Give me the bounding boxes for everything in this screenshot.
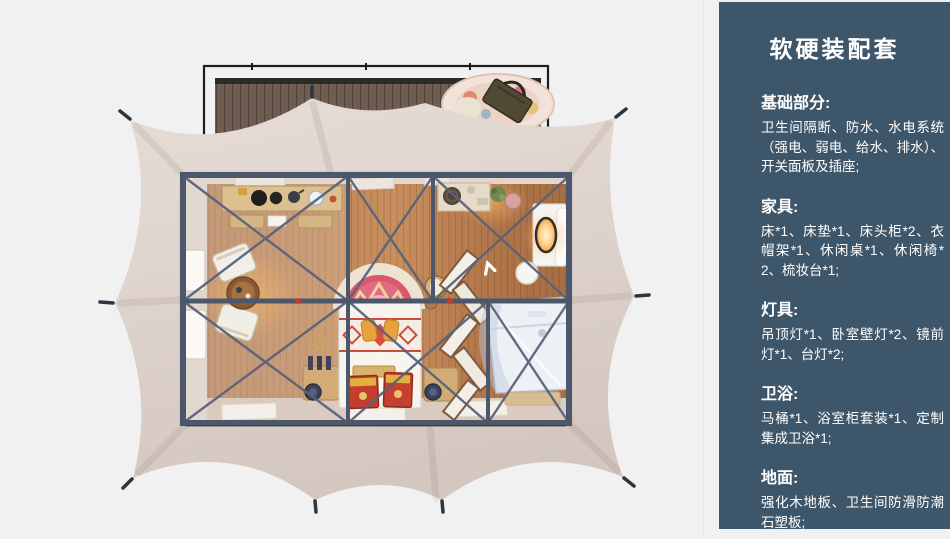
room: [180, 172, 572, 426]
section-bath-heading: 卫浴:: [761, 385, 944, 405]
section-basics: 基础部分: 卫生间隔断、防水、水电系统（强电、弱电、给水、排水）、开关面板及插座…: [761, 94, 944, 177]
frame-joint: [447, 298, 453, 304]
section-basics-body: 卫生间隔断、防水、水电系统（强电、弱电、给水、排水）、开关面板及插座;: [761, 118, 944, 177]
tent-floorplan-scene: [0, 0, 712, 534]
spec-panel: 软硬装配套 基础部分: 卫生间隔断、防水、水电系统（强电、弱电、给水、排水）、开…: [719, 2, 950, 529]
section-furniture-heading: 家具:: [761, 198, 944, 218]
pink-stool: [505, 193, 521, 209]
dressing-desk: [222, 186, 342, 228]
section-lighting: 灯具: 吊顶灯*1、卧室壁灯*2、镜前灯*1、台灯*2;: [761, 301, 944, 364]
scene-panel-divider: [703, 0, 704, 534]
frame-joint: [295, 298, 301, 304]
section-furniture-body: 床*1、床垫*1、床头柜*2、衣帽架*1、休闲桌*1、休闲椅*2、梳妆台*1;: [761, 222, 944, 281]
vanity-stool: [516, 262, 538, 284]
panel-title: 软硬装配套: [719, 30, 950, 64]
section-flooring-heading: 地面:: [761, 469, 944, 489]
section-furniture: 家具: 床*1、床垫*1、床头柜*2、衣帽架*1、休闲桌*1、休闲椅*2、梳妆台…: [761, 198, 944, 281]
floorplan-render: [0, 0, 712, 534]
section-bath-body: 马桶*1、浴室柜套装*1、定制集成卫浴*1;: [761, 409, 944, 448]
section-basics-heading: 基础部分:: [761, 94, 944, 114]
section-lighting-body: 吊顶灯*1、卧室壁灯*2、镜前灯*1、台灯*2;: [761, 325, 944, 364]
section-bath: 卫浴: 马桶*1、浴室柜套装*1、定制集成卫浴*1;: [761, 385, 944, 448]
panel-body: 基础部分: 卫生间隔断、防水、水电系统（强电、弱电、给水、排水）、开关面板及插座…: [719, 94, 950, 532]
section-flooring-body: 强化木地板、卫生间防滑防潮石塑板;: [761, 493, 944, 532]
section-lighting-heading: 灯具:: [761, 301, 944, 321]
section-flooring: 地面: 强化木地板、卫生间防滑防潮石塑板;: [761, 469, 944, 532]
lit-mirror: [536, 218, 556, 252]
